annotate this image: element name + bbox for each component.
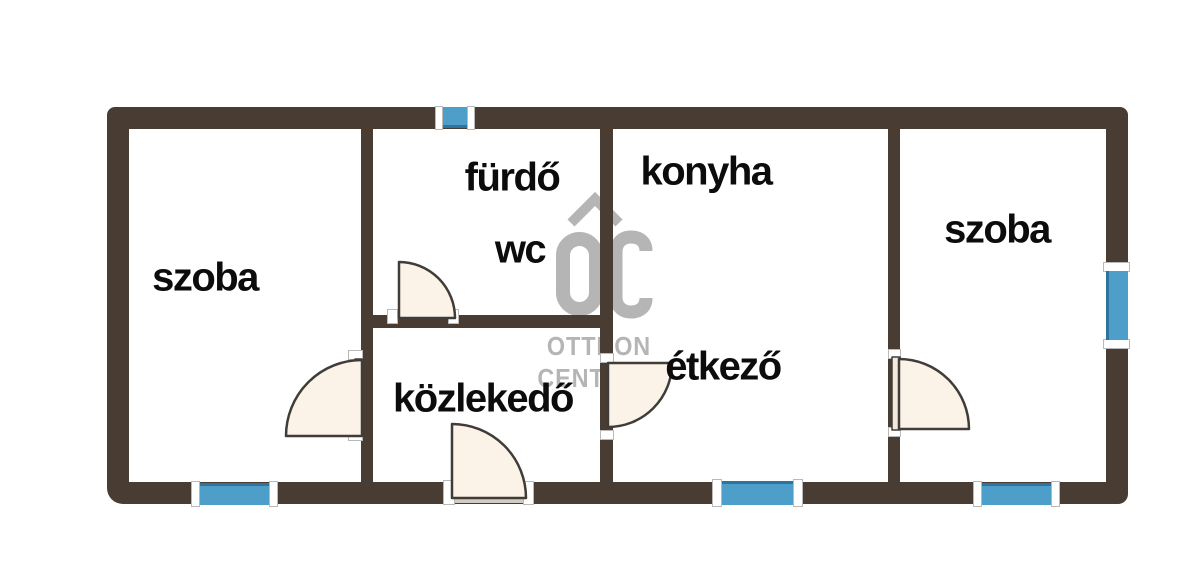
door-jamb [448,309,459,324]
entry-threshold [452,483,526,503]
room-label-szoba-right: szoba [944,208,1050,253]
partition-wall-center [600,128,613,482]
room-label-wc: wc [495,228,545,273]
room-label-szoba-left: szoba [152,256,258,301]
door-jamb [443,480,455,505]
floorplan-canvas: { "watermark": { "monogram": "OC", "line… [0,0,1200,580]
door-jamb [600,353,614,363]
window-jamb [1103,339,1130,349]
window-etkezo [722,481,793,505]
room-label-konyha: konyha [640,150,771,195]
door-jamb [523,481,534,505]
room-label-kozlekedo: közlekedő [393,377,573,422]
room-label-furdo: fürdő [465,156,560,201]
partition-wall-szoba-left [361,128,373,482]
window-furdo [443,107,467,128]
window-jamb [191,481,200,507]
window-jamb [1051,481,1060,507]
door-jamb [387,309,398,324]
door-jamb [600,430,614,440]
door-jamb [348,431,363,441]
window-jamb [793,479,803,507]
window-szoba-right-east [1106,271,1128,340]
door-jamb [888,427,901,437]
window-szoba-left [200,483,269,505]
window-jamb [712,479,722,507]
window-jamb [467,106,475,130]
door-jamb [348,350,363,360]
partition-wall-bathroom [361,315,613,328]
door-jamb [888,349,901,359]
window-szoba-right-south [982,483,1051,505]
window-jamb [435,106,443,130]
outer-wall [107,107,1128,504]
room-label-etkezo: étkező [665,345,781,390]
window-jamb [973,481,982,507]
window-jamb [269,481,278,507]
